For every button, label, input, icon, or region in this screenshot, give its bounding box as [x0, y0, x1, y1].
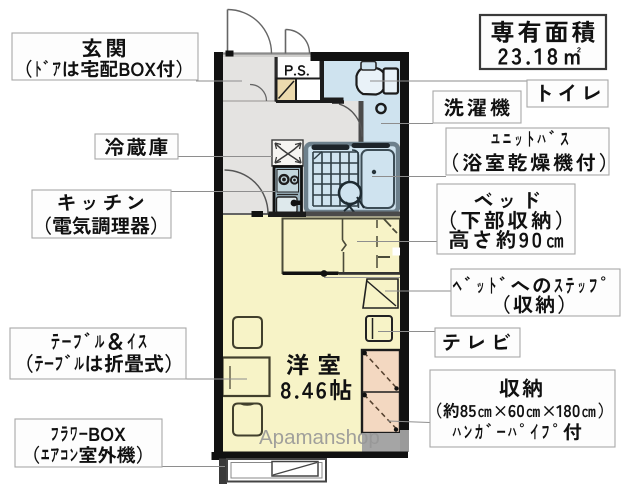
svg-text:Apamanshop: Apamanshop — [259, 426, 380, 449]
